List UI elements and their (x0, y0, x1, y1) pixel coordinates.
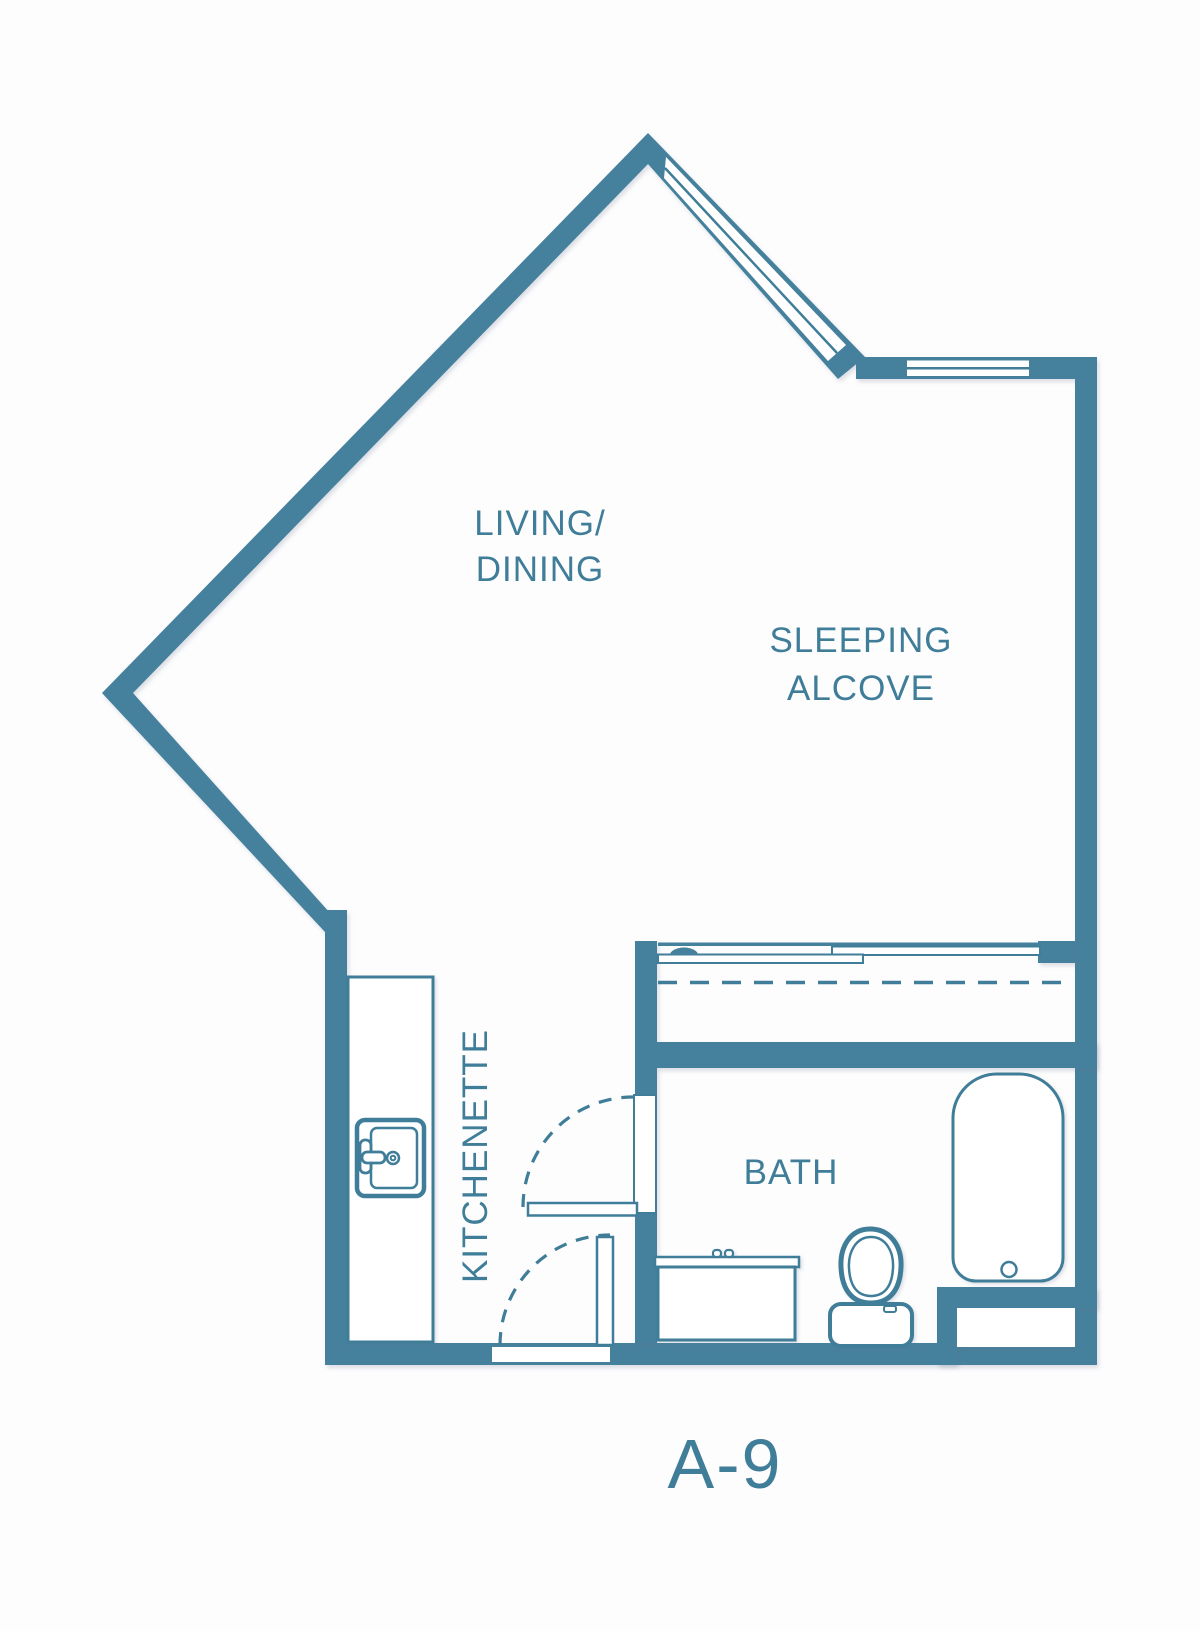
wall-closet-bottom (635, 1042, 1097, 1068)
wall-right-vertical (1075, 357, 1097, 1365)
unit-title: A-9 (668, 1425, 783, 1503)
floor-plan-page: LIVING/ DINING SLEEPING ALCOVE KITCHENET… (0, 0, 1200, 1631)
closet-door-pull (670, 948, 698, 955)
bath-label: BATH (744, 1153, 839, 1192)
window-diagonal-glass (664, 157, 846, 361)
floor-plan-drawing: LIVING/ DINING SLEEPING ALCOVE KITCHENET… (0, 0, 1200, 1631)
closet-sliding-doors (658, 943, 1072, 983)
kitchenette-counter (348, 977, 433, 1342)
kitchen-sink-handle (387, 1152, 399, 1164)
kitchen-sink-icon (357, 1120, 424, 1196)
bathtub-icon (953, 1074, 1063, 1281)
bath-door-swing (523, 1095, 656, 1216)
vanity-faucet-knob-right (725, 1250, 733, 1257)
window-diagonal (664, 157, 846, 361)
entry-door-leaf (597, 1237, 613, 1345)
wall-upper-left-diagonal (102, 133, 648, 693)
wall-bottom-right-band (937, 1287, 1097, 1308)
living-dining-label-line1: LIVING/ (474, 504, 605, 543)
vanity-body (658, 1267, 795, 1340)
closet-door-panel-front (658, 955, 863, 964)
toilet-bowl-inner (849, 1237, 893, 1296)
toilet-tank (830, 1304, 912, 1346)
entry-door-arc (500, 1235, 610, 1345)
sleeping-alcove-label-line2: ALCOVE (787, 669, 935, 708)
bath-door-arc (523, 1097, 633, 1207)
toilet-icon (830, 1229, 912, 1346)
exterior-walls (102, 133, 1097, 1365)
living-dining-label-line2: DINING (476, 550, 605, 589)
window-horizontal (907, 361, 1029, 377)
closet-track-line (658, 943, 1040, 947)
wall-niche (957, 1308, 1075, 1347)
bath-door-leaf (528, 1203, 637, 1216)
bath-door-jamb (634, 1095, 656, 1213)
vanity-faucet-knob-left (713, 1250, 721, 1257)
wall-lower-left-diagonal (102, 693, 347, 932)
kitchen-sink-faucet-spout (362, 1152, 385, 1163)
sleeping-alcove-label-line1: SLEEPING (769, 621, 952, 660)
bathtub-outline (953, 1074, 1063, 1281)
wall-closet-right-stub (1038, 941, 1075, 963)
entry-door-threshold (492, 1347, 610, 1362)
kitchenette-label: KITCHENETTE (456, 1029, 495, 1283)
entry-door-swing (492, 1235, 613, 1362)
vanity-sink-icon (655, 1250, 799, 1340)
wall-left-vertical (325, 910, 347, 1365)
room-labels: LIVING/ DINING SLEEPING ALCOVE KITCHENET… (456, 504, 953, 1283)
window-diagonal-mullion (665, 168, 837, 353)
